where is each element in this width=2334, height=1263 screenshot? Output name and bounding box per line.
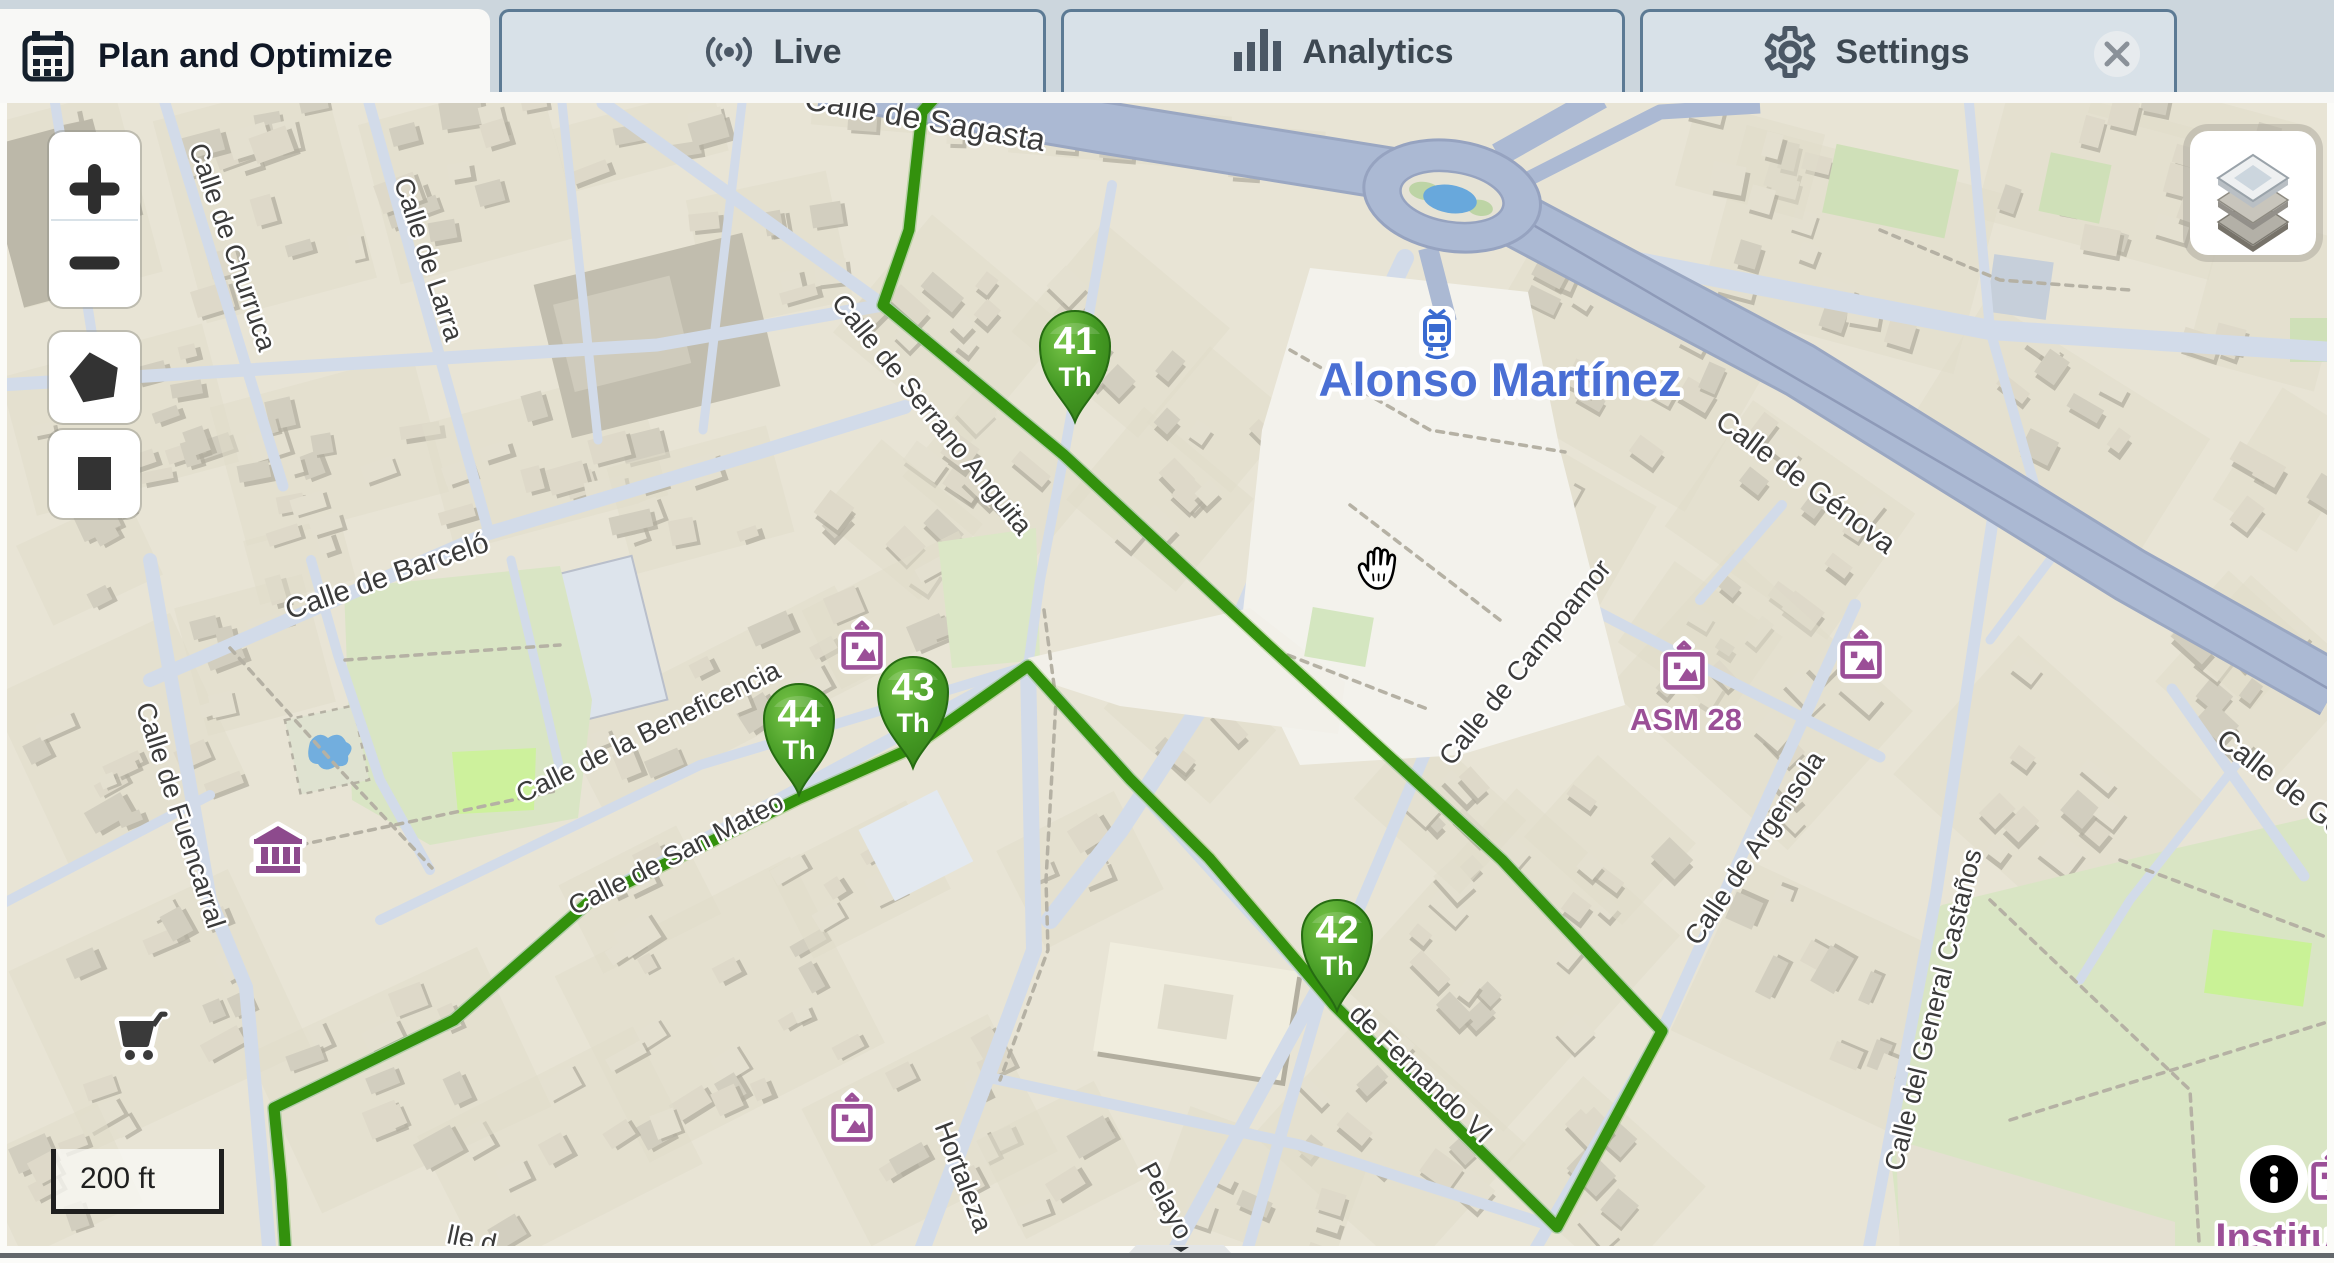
- svg-text:Th: Th: [783, 735, 816, 765]
- svg-text:Th: Th: [1059, 362, 1092, 392]
- svg-text:44: 44: [777, 693, 821, 736]
- svg-text:43: 43: [891, 666, 934, 709]
- svg-text:41: 41: [1053, 320, 1096, 363]
- svg-text:Alonso Martínez: Alonso Martínez: [1319, 353, 1682, 406]
- svg-text:ASM 28: ASM 28: [1630, 702, 1742, 737]
- svg-text:Th: Th: [1321, 951, 1354, 981]
- svg-text:42: 42: [1315, 909, 1358, 952]
- svg-text:Th: Th: [897, 708, 930, 738]
